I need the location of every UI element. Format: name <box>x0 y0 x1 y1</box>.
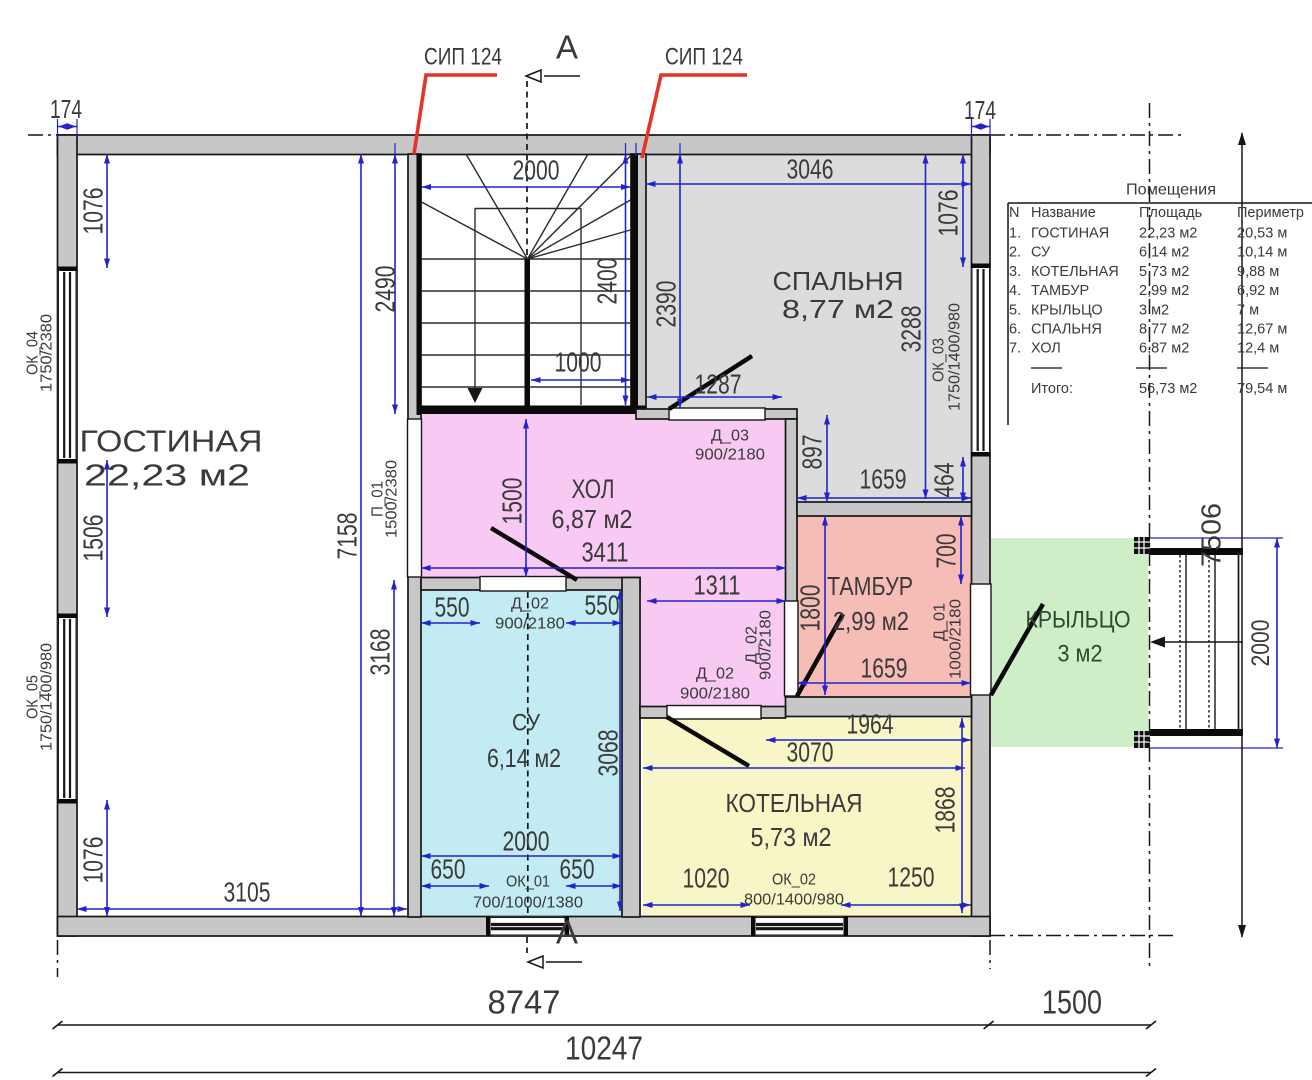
svg-text:1500: 1500 <box>497 478 528 525</box>
svg-text:6,92 м: 6,92 м <box>1237 283 1279 299</box>
svg-text:1250: 1250 <box>888 862 935 893</box>
svg-text:N: N <box>1009 205 1019 221</box>
svg-text:1020: 1020 <box>683 863 730 894</box>
svg-text:1750/1400/980: 1750/1400/980 <box>947 303 964 411</box>
svg-text:СУ: СУ <box>512 710 541 737</box>
svg-text:464: 464 <box>929 463 960 498</box>
svg-text:3070: 3070 <box>787 737 834 768</box>
svg-text:1800: 1800 <box>795 585 826 632</box>
svg-text:2400: 2400 <box>592 258 623 305</box>
svg-text:Д_02: Д_02 <box>696 666 734 683</box>
svg-text:1076: 1076 <box>78 837 109 884</box>
svg-text:1500/2380: 1500/2380 <box>384 460 401 538</box>
svg-text:2000: 2000 <box>503 826 550 857</box>
svg-text:7506: 7506 <box>1196 503 1227 567</box>
svg-text:900/2180: 900/2180 <box>695 447 765 464</box>
svg-text:А: А <box>556 29 578 66</box>
svg-text:4.: 4. <box>1009 283 1021 299</box>
svg-text:800/1400/980: 800/1400/980 <box>744 892 844 909</box>
svg-text:СПАЛЬНЯ: СПАЛЬНЯ <box>1031 322 1102 338</box>
svg-text:СИП 124: СИП 124 <box>665 44 743 71</box>
svg-text:3 м2: 3 м2 <box>1139 303 1169 319</box>
svg-text:10,14 м: 10,14 м <box>1237 245 1287 261</box>
svg-text:КРЫЛЬЦО: КРЫЛЬЦО <box>1031 303 1103 319</box>
svg-text:ОК_01: ОК_01 <box>506 874 550 891</box>
svg-text:ГОСТИНАЯ: ГОСТИНАЯ <box>80 424 263 459</box>
svg-text:900/2180: 900/2180 <box>495 616 565 633</box>
svg-text:550: 550 <box>585 590 620 621</box>
svg-text:2000: 2000 <box>513 155 560 186</box>
svg-text:700: 700 <box>931 534 962 569</box>
svg-text:10247: 10247 <box>565 1030 643 1067</box>
svg-text:ГОСТИНАЯ: ГОСТИНАЯ <box>1031 226 1109 242</box>
svg-text:22,23 м2: 22,23 м2 <box>84 458 250 493</box>
svg-text:Итого:: Итого: <box>1031 381 1073 397</box>
svg-text:900/2180: 900/2180 <box>758 610 775 680</box>
svg-text:1311: 1311 <box>694 570 741 601</box>
svg-text:Помещения: Помещения <box>1126 182 1216 199</box>
svg-text:1750/2380: 1750/2380 <box>39 314 56 392</box>
svg-text:3168: 3168 <box>365 629 396 676</box>
svg-text:1076: 1076 <box>933 190 964 237</box>
svg-text:ТАМБУР: ТАМБУР <box>827 571 913 601</box>
svg-text:1659: 1659 <box>861 653 908 684</box>
svg-text:3 м2: 3 м2 <box>1058 641 1103 668</box>
svg-text:2000: 2000 <box>1247 620 1275 667</box>
svg-text:174: 174 <box>964 95 996 125</box>
svg-text:5,73 м2: 5,73 м2 <box>751 822 832 852</box>
svg-text:6,87 м2: 6,87 м2 <box>1139 341 1189 357</box>
svg-text:Площадь: Площадь <box>1139 205 1202 221</box>
svg-text:КОТЕЛЬНАЯ: КОТЕЛЬНАЯ <box>726 788 863 818</box>
svg-text:3411: 3411 <box>582 537 629 568</box>
svg-text:22,23 м2: 22,23 м2 <box>1139 226 1197 242</box>
svg-text:5,73 м2: 5,73 м2 <box>1139 264 1189 280</box>
svg-text:КРЫЛЬЦО: КРЫЛЬЦО <box>1026 607 1131 634</box>
svg-text:3105: 3105 <box>224 877 271 908</box>
svg-text:8,77 м2: 8,77 м2 <box>1139 322 1189 338</box>
svg-text:СПАЛЬНЯ: СПАЛЬНЯ <box>773 266 904 296</box>
svg-text:Периметр: Периметр <box>1237 205 1304 221</box>
svg-text:3046: 3046 <box>787 154 834 185</box>
svg-text:7 м: 7 м <box>1237 303 1259 319</box>
svg-text:СУ: СУ <box>1031 245 1051 261</box>
svg-text:6.: 6. <box>1009 322 1021 338</box>
svg-text:ТАМБУР: ТАМБУР <box>1031 283 1089 299</box>
svg-text:ОК_02: ОК_02 <box>772 872 816 889</box>
svg-text:900/2180: 900/2180 <box>680 686 750 703</box>
svg-text:12,4 м: 12,4 м <box>1237 341 1279 357</box>
svg-text:СИП 124: СИП 124 <box>424 44 502 71</box>
svg-text:20,53 м: 20,53 м <box>1237 226 1287 242</box>
svg-text:56,73 м2: 56,73 м2 <box>1139 381 1197 397</box>
svg-text:ОК_03: ОК_03 <box>931 338 948 382</box>
svg-text:КОТЕЛЬНАЯ: КОТЕЛЬНАЯ <box>1031 264 1119 280</box>
svg-text:2,99 м2: 2,99 м2 <box>833 606 909 636</box>
svg-text:5.: 5. <box>1009 303 1021 319</box>
svg-text:Д_02: Д_02 <box>511 596 549 613</box>
svg-text:2490: 2490 <box>370 266 401 313</box>
svg-text:1659: 1659 <box>860 464 907 495</box>
svg-text:1506: 1506 <box>78 515 109 562</box>
svg-text:1076: 1076 <box>78 188 109 235</box>
svg-text:8,77 м2: 8,77 м2 <box>782 294 894 324</box>
svg-text:А: А <box>556 914 578 951</box>
svg-text:2.: 2. <box>1009 245 1021 261</box>
svg-text:Д_01: Д_01 <box>932 603 949 641</box>
svg-text:Д_03: Д_03 <box>711 428 749 445</box>
svg-text:897: 897 <box>797 435 828 470</box>
svg-text:7.: 7. <box>1009 341 1021 357</box>
svg-text:2390: 2390 <box>651 281 682 328</box>
svg-text:9,88 м: 9,88 м <box>1237 264 1279 280</box>
svg-text:6,87 м2: 6,87 м2 <box>552 504 633 534</box>
svg-text:174: 174 <box>50 94 82 124</box>
svg-text:650: 650 <box>431 854 466 885</box>
svg-text:12,67 м: 12,67 м <box>1237 322 1287 338</box>
svg-text:ХОЛ: ХОЛ <box>572 474 615 504</box>
svg-text:1287: 1287 <box>695 369 742 400</box>
svg-text:79,54 м: 79,54 м <box>1237 381 1287 397</box>
svg-text:1500: 1500 <box>1042 984 1102 1021</box>
svg-text:650: 650 <box>560 854 595 885</box>
svg-text:2,99 м2: 2,99 м2 <box>1139 283 1189 299</box>
svg-text:7158: 7158 <box>332 513 363 560</box>
svg-text:Название: Название <box>1031 205 1096 221</box>
svg-text:3068: 3068 <box>593 730 624 777</box>
svg-text:1964: 1964 <box>847 709 894 740</box>
svg-text:6,14 м2: 6,14 м2 <box>1139 245 1189 261</box>
svg-text:1.: 1. <box>1009 226 1021 242</box>
svg-text:550: 550 <box>435 592 470 623</box>
svg-text:700/1000/1380: 700/1000/1380 <box>473 895 583 912</box>
svg-text:1000: 1000 <box>555 347 602 378</box>
svg-text:ХОЛ: ХОЛ <box>1031 341 1061 357</box>
svg-text:1000/2180: 1000/2180 <box>948 599 965 679</box>
svg-text:1868: 1868 <box>930 787 961 834</box>
svg-text:1750/1400/980: 1750/1400/980 <box>39 643 56 751</box>
svg-text:3.: 3. <box>1009 264 1021 280</box>
svg-text:8747: 8747 <box>488 984 561 1021</box>
svg-text:6,14 м2: 6,14 м2 <box>487 743 561 773</box>
svg-text:3288: 3288 <box>896 306 927 353</box>
